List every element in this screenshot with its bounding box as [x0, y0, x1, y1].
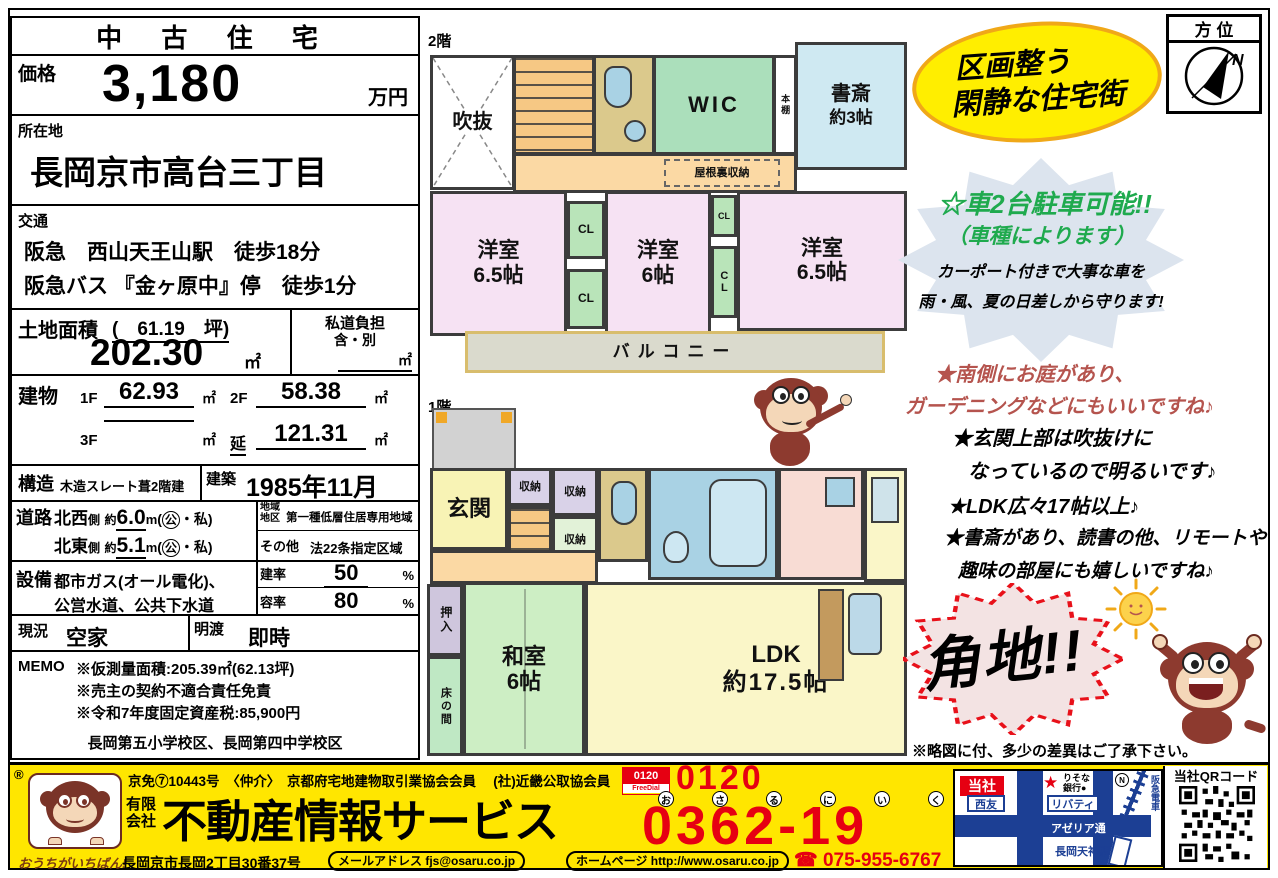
room-washitsu: 和室6帖 [463, 582, 585, 756]
qr-code [1179, 786, 1255, 862]
location-value: 長岡京市高台三丁目 [30, 146, 327, 194]
road1-kind-rest: ・私) [180, 511, 213, 527]
room-study: 書斎約3帖 [795, 42, 907, 170]
room-washroom [778, 468, 864, 580]
road2-side: 北東 [54, 537, 88, 556]
bath-stool-icon [663, 531, 689, 563]
road2-approx: 約 [104, 541, 116, 555]
phone-main: 0362-19 [642, 795, 868, 857]
price-unit: 万円 [368, 81, 408, 110]
room-bed1-label: 洋室6.5帖 [473, 239, 523, 287]
building-2f-value: 58.38 [256, 378, 366, 408]
facilities-line2: 公営水道、公共下水道 [54, 592, 214, 616]
room-ldk: LDK約17.5帖 [585, 582, 907, 756]
road2-kind-rest: ・私) [180, 539, 213, 555]
point-red-1: ★南側にお庭があり、 [935, 358, 1134, 387]
porch-post-2 [501, 412, 512, 423]
built-label: 建築 [206, 468, 236, 489]
tel-number: ☎ 075-955-6767 [794, 849, 941, 872]
bed2-area: 6帖 [642, 264, 675, 287]
company-prefix: 有限 会社 [126, 797, 156, 830]
room-toilet-1f [598, 468, 648, 562]
company-logo [28, 773, 122, 849]
tokonoma-label: 床の間 [439, 687, 452, 726]
attic-storage-label: 屋根裏収納 [695, 167, 750, 180]
other-label: その他 [260, 536, 299, 555]
road2-side-sfx: 側 [88, 541, 100, 555]
road1-side: 北西 [54, 509, 88, 528]
furigana-5: い [874, 791, 890, 807]
porch [432, 408, 516, 470]
closet-cl-1: CL [567, 201, 605, 259]
point-2: ★LDK広々17帖以上♪ [948, 490, 1139, 519]
qr-section: 当社QRコード [1163, 766, 1267, 868]
road1-side-sfx: 側 [88, 513, 100, 527]
sink-icon-2f [624, 120, 646, 142]
bed1-name: 洋室 [477, 239, 519, 262]
property-info-panel: 中 古 住 宅 価格 3,180 万円 所在地 長岡京市高台三丁目 交通 阪急 … [10, 16, 420, 760]
map-azeria: アゼリア通 [1051, 820, 1106, 836]
entrance-label: 玄関 [447, 496, 491, 521]
kitchen-upper [864, 468, 907, 582]
bathtub-icon [709, 479, 767, 567]
structure-label: 構造 [18, 470, 54, 496]
location-label: 所在地 [18, 120, 63, 141]
room-bed3: 洋室6.5帖 [737, 191, 907, 331]
company-tagline: おうちがいちばん! [18, 853, 126, 872]
road-row-1: 北西側 約6.0m(公・私) [54, 504, 213, 530]
map-station-label: 長岡天神駅 [1055, 843, 1110, 859]
toilet-icon-1f [611, 481, 637, 525]
panel-title: 中 古 住 宅 [12, 18, 418, 56]
room-bed3-label: 洋室6.5帖 [797, 237, 847, 285]
stove-icon [871, 477, 899, 523]
kitchen-sink [848, 593, 882, 655]
map-north: N [1115, 773, 1129, 787]
memo-line3: ※令和7年度固定資産税:85,900円 [76, 702, 300, 723]
qr-label: 当社QRコード [1165, 766, 1267, 784]
access-line1: 阪急 西山天王山駅 徒歩18分 [24, 236, 320, 266]
kitchen-counter [818, 589, 844, 681]
company-address: 長岡京市長岡2丁目30番37号 [122, 853, 301, 873]
handover-label: 明渡 [194, 618, 224, 639]
building-label: 建物 [18, 380, 58, 409]
registered-mark: ® [14, 767, 24, 782]
company-prefix-1: 有限 [126, 797, 156, 814]
facilities-line1: 都市ガス(オール電化)、 [54, 568, 225, 592]
road2-width: 5.1 [116, 534, 145, 559]
access-line2: 阪急バス 『金ヶ原中』停 徒歩1分 [24, 270, 357, 300]
parking-line2: （車種によります） [898, 220, 1184, 250]
parking-line4: 雨・風、夏の日差しから守ります! [898, 288, 1184, 312]
room-wic-label: WIC [688, 92, 740, 117]
building-total-label: 延 [230, 430, 246, 456]
far-unit: % [402, 596, 414, 611]
study-area: 約3帖 [829, 108, 872, 127]
ldk-name: LDK [751, 641, 800, 668]
freedial-logo-top: 0120 [623, 768, 669, 784]
footer-bar: ® おうちがいちばん! 京免⑦10443号 〈仲介〉 京都府宅地建物取引業協会会… [10, 762, 1268, 868]
price-label: 価格 [18, 59, 56, 86]
map-bank-label: りそな 銀行● [1063, 774, 1090, 794]
room-study-label: 書斎約3帖 [829, 83, 872, 129]
memo-label: MEMO [18, 658, 65, 675]
email-pill: メールアドレス fjs@osaru.co.jp [328, 851, 525, 871]
washitsu-name: 和室 [502, 644, 546, 669]
balcony: バルコニー [465, 331, 885, 373]
company-name: 不動産情報サービス [162, 785, 558, 850]
room-toilet-2f [593, 55, 655, 155]
bcr-unit: % [402, 568, 414, 583]
room-bath [648, 468, 778, 580]
building-1f-label: 1F [80, 390, 98, 407]
road1-unit: m [146, 512, 158, 527]
map-company-marker: 当社 [960, 776, 1004, 796]
district-label1: 地域 [260, 502, 280, 513]
memo-line1: ※仮測量面積:205.39㎡(62.13坪) [76, 658, 294, 679]
map-liberty: リバティ [1047, 795, 1099, 812]
district-value: 第一種低層住居専用地域 [286, 509, 413, 525]
point-red-2: ガーデニングなどにもいいですね♪ [905, 390, 1214, 419]
floorplan-2f: 2階 吹抜 WIC 本棚 書斎約3帖 屋根裏収納 洋室6.5帖 CL CL 洋室… [425, 14, 910, 376]
bed2-name: 洋室 [637, 239, 679, 262]
study-name: 書斎 [831, 83, 871, 105]
building-2f-label: 2F [230, 390, 248, 407]
oshiire-label: 押入 [438, 606, 452, 634]
road1-kind-circled: 公 [162, 511, 180, 529]
monkey-smile [782, 416, 802, 425]
bed1-area: 6.5帖 [473, 264, 523, 287]
monkey-open-mouth [1189, 678, 1223, 700]
room-storage-1: 収納 [508, 468, 552, 506]
building-total-unit: ㎡ [374, 430, 388, 450]
floor-label-2f: 2階 [428, 30, 451, 51]
disclaimer: ※略図に付、多少の差異はご了承下さい。 [912, 740, 1197, 761]
room-bookshelf-label: 本棚 [780, 94, 790, 116]
building-total-value: 121.31 [256, 420, 366, 450]
washitsu-area: 6帖 [507, 669, 541, 694]
parking-line3: カーポート付きで大事な車を [898, 258, 1184, 282]
washer-icon [825, 477, 855, 507]
compass-label: 方 位 [1169, 17, 1259, 43]
status-value: 空家 [66, 622, 108, 652]
cl2-label: CL [578, 292, 594, 306]
private-road-unit: ㎡ [338, 350, 412, 372]
built-value: 1985年11月 [246, 468, 378, 504]
point-1a: ★玄関上部は吹抜けに [952, 422, 1152, 451]
memo-line2: ※売主の契約不適合責任免責 [76, 680, 271, 701]
point-1b: なっているので明るいです♪ [968, 455, 1216, 484]
building-1f-value: 62.93 [104, 378, 194, 408]
room-bed2: 洋室6帖 [605, 191, 711, 336]
structure-value: 木造スレート葺2階建 [60, 476, 184, 495]
furigana-6: く [928, 791, 944, 807]
room-oshiire: 押入 [427, 584, 463, 656]
room-bookshelf: 本棚 [773, 55, 797, 155]
cl3-label: CL [718, 211, 730, 221]
status-label: 現況 [18, 620, 48, 641]
room-bed2-label: 洋室6帖 [637, 239, 679, 287]
district-label: 地域地区 [260, 503, 280, 524]
storage1-label: 収納 [519, 481, 541, 494]
road2-kind-circled: 公 [162, 539, 180, 557]
road1-width: 6.0 [116, 506, 145, 531]
room-entrance: 玄関 [430, 468, 508, 550]
building-3f-label: 3F [80, 432, 98, 449]
monkey-mascot-cheering [1152, 618, 1262, 746]
ldk-area: 約17.5帖 [723, 669, 830, 696]
balcony-label: バルコニー [613, 342, 738, 362]
building-3f-value [104, 420, 194, 422]
storage3-label: 収納 [564, 534, 586, 547]
hall-1f [430, 550, 598, 584]
room-wic: WIC [653, 55, 775, 155]
room-stairs-2f [513, 55, 595, 155]
price-value: 3,180 [102, 54, 242, 114]
map-railway-label: 阪急電車 [1149, 775, 1162, 811]
ldk-label: LDK約17.5帖 [723, 641, 830, 696]
far-label: 容率 [260, 592, 286, 611]
monkey-hand [840, 394, 852, 406]
company-prefix-2: 会社 [126, 814, 156, 831]
corner-lot-text: 角地!! [917, 603, 1088, 704]
washitsu-label: 和室6帖 [502, 644, 546, 695]
room-bed1: 洋室6.5帖 [430, 191, 567, 336]
room-void-label: 吹抜 [451, 111, 495, 134]
storage2-label: 収納 [564, 486, 586, 499]
map-star: ★ [1043, 773, 1058, 793]
monkey-mascot-pointing [752, 368, 852, 468]
compass-icon: N [1169, 43, 1259, 109]
toilet-icon-2f [604, 66, 632, 108]
access-map: 当社 ★ りそな 銀行● N 西友 リバティ アゼリア通 長岡天神駅 阪急電車 [953, 769, 1163, 867]
closet-cl-2: CL [567, 269, 605, 329]
road-label: 道路 [16, 504, 52, 530]
other-value: 法22条指定区域 [310, 538, 402, 557]
memo-schools: 長岡第五小学校区、長岡第四中学校区 [12, 732, 418, 753]
access-label: 交通 [18, 210, 48, 231]
bcr-value: 50 [324, 560, 368, 588]
road2-unit: m [146, 540, 158, 555]
room-storage-2: 収納 [552, 468, 598, 516]
road1-approx: 約 [104, 513, 116, 527]
facilities-label: 設備 [16, 566, 52, 592]
map-seiyu: 西友 [967, 795, 1005, 812]
private-road-value: 含・別 [292, 330, 418, 350]
bed3-name: 洋室 [801, 237, 843, 260]
compass-box: 方 位 N [1166, 14, 1262, 114]
bed3-area: 6.5帖 [797, 261, 847, 284]
handover-value: 即時 [248, 622, 290, 652]
far-value: 80 [324, 588, 368, 616]
building-2f-unit: ㎡ [374, 388, 388, 408]
parking-burst: ☆車2台駐車可能!! （車種によります） カーポート付きで大事な車を 雨・風、夏… [898, 158, 1184, 362]
land-unit: ㎡ [244, 348, 261, 373]
attic-storage: 屋根裏収納 [664, 159, 780, 187]
point-3b: 趣味の部屋にも嬉しいですね♪ [958, 556, 1214, 583]
room-void: 吹抜 [430, 55, 515, 190]
bcr-label: 建率 [260, 564, 286, 583]
building-1f-unit: ㎡ [202, 388, 216, 408]
land-value: 202.30 [82, 332, 211, 376]
porch-post-1 [436, 412, 447, 423]
building-3f-unit: ㎡ [202, 430, 216, 450]
cl1-label: CL [578, 223, 594, 237]
closet-cl-3: CL [711, 195, 737, 237]
room-tokonoma: 床の間 [427, 656, 463, 756]
parking-line1: ☆車2台駐車可能!! [902, 184, 1188, 221]
catch-text: 区画整う 閑静な住宅街 [948, 40, 1127, 124]
point-3a: ★書斎があり、読書の他、リモートや [944, 523, 1266, 550]
road-row-2: 北東側 約5.1m(公・私) [54, 532, 213, 558]
svg-text:N: N [1232, 52, 1244, 69]
district-label2: 地区 [260, 513, 280, 524]
corner-lot-burst: 角地!! [903, 583, 1123, 735]
hall-2f: 屋根裏収納 [513, 153, 797, 193]
cl4-label: CL [718, 270, 731, 294]
closet-cl-4: CL [711, 246, 737, 318]
